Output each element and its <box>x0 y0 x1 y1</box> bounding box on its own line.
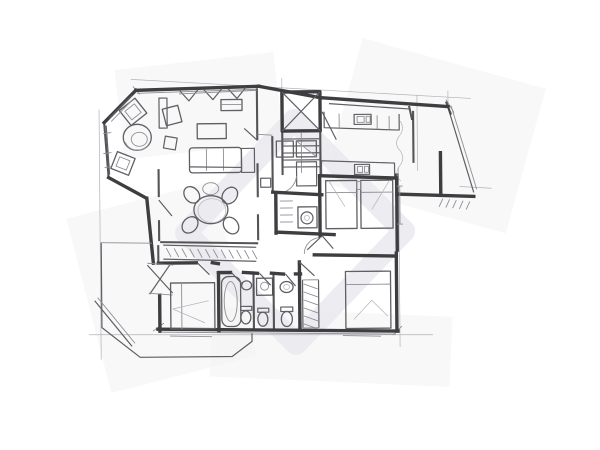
interior-bathroom-el-8 <box>301 212 313 224</box>
right-wall-lower <box>396 253 397 331</box>
bathroom-small-el-2 <box>284 285 290 290</box>
interior-bathroom <box>273 192 334 250</box>
corridor-pl-5 <box>212 263 218 264</box>
bedroom2-left-wall <box>299 262 300 330</box>
closet-hatch-tick <box>304 284 318 289</box>
closet-hatch-tick <box>304 292 318 297</box>
sofa-back <box>190 166 242 167</box>
bedroom1-left-wall <box>320 176 321 236</box>
bathroom-shower-el-2 <box>261 282 269 290</box>
living-room-ln-26 <box>103 153 111 154</box>
console <box>261 178 271 187</box>
paper-shading-rc-0 <box>323 38 546 233</box>
floorplan-drawing <box>65 36 549 393</box>
bay-bottom-wall <box>109 177 145 197</box>
door-leaf <box>322 236 333 249</box>
basin <box>280 281 293 292</box>
bedroom2-top-wall <box>314 254 396 257</box>
sketch-page <box>0 0 600 450</box>
bathroom-tub-pl-0 <box>218 273 219 331</box>
closet-hatch-tick <box>304 300 318 305</box>
wardrobe-hatch-tick <box>244 250 249 259</box>
interior-bathroom-pl-1 <box>276 232 334 236</box>
wardrobe-hatch-tick <box>237 250 242 259</box>
living-room-ln-27 <box>105 167 112 168</box>
interior-bathroom-pl-2 <box>273 192 322 195</box>
interior-bathroom-el-9 <box>304 215 309 220</box>
entry-door-arc <box>279 176 297 193</box>
wardrobe-hatch-tick <box>252 250 257 259</box>
floorplan-svg <box>0 0 600 450</box>
cabinet <box>296 162 316 186</box>
corridor-pl-8 <box>243 272 257 273</box>
